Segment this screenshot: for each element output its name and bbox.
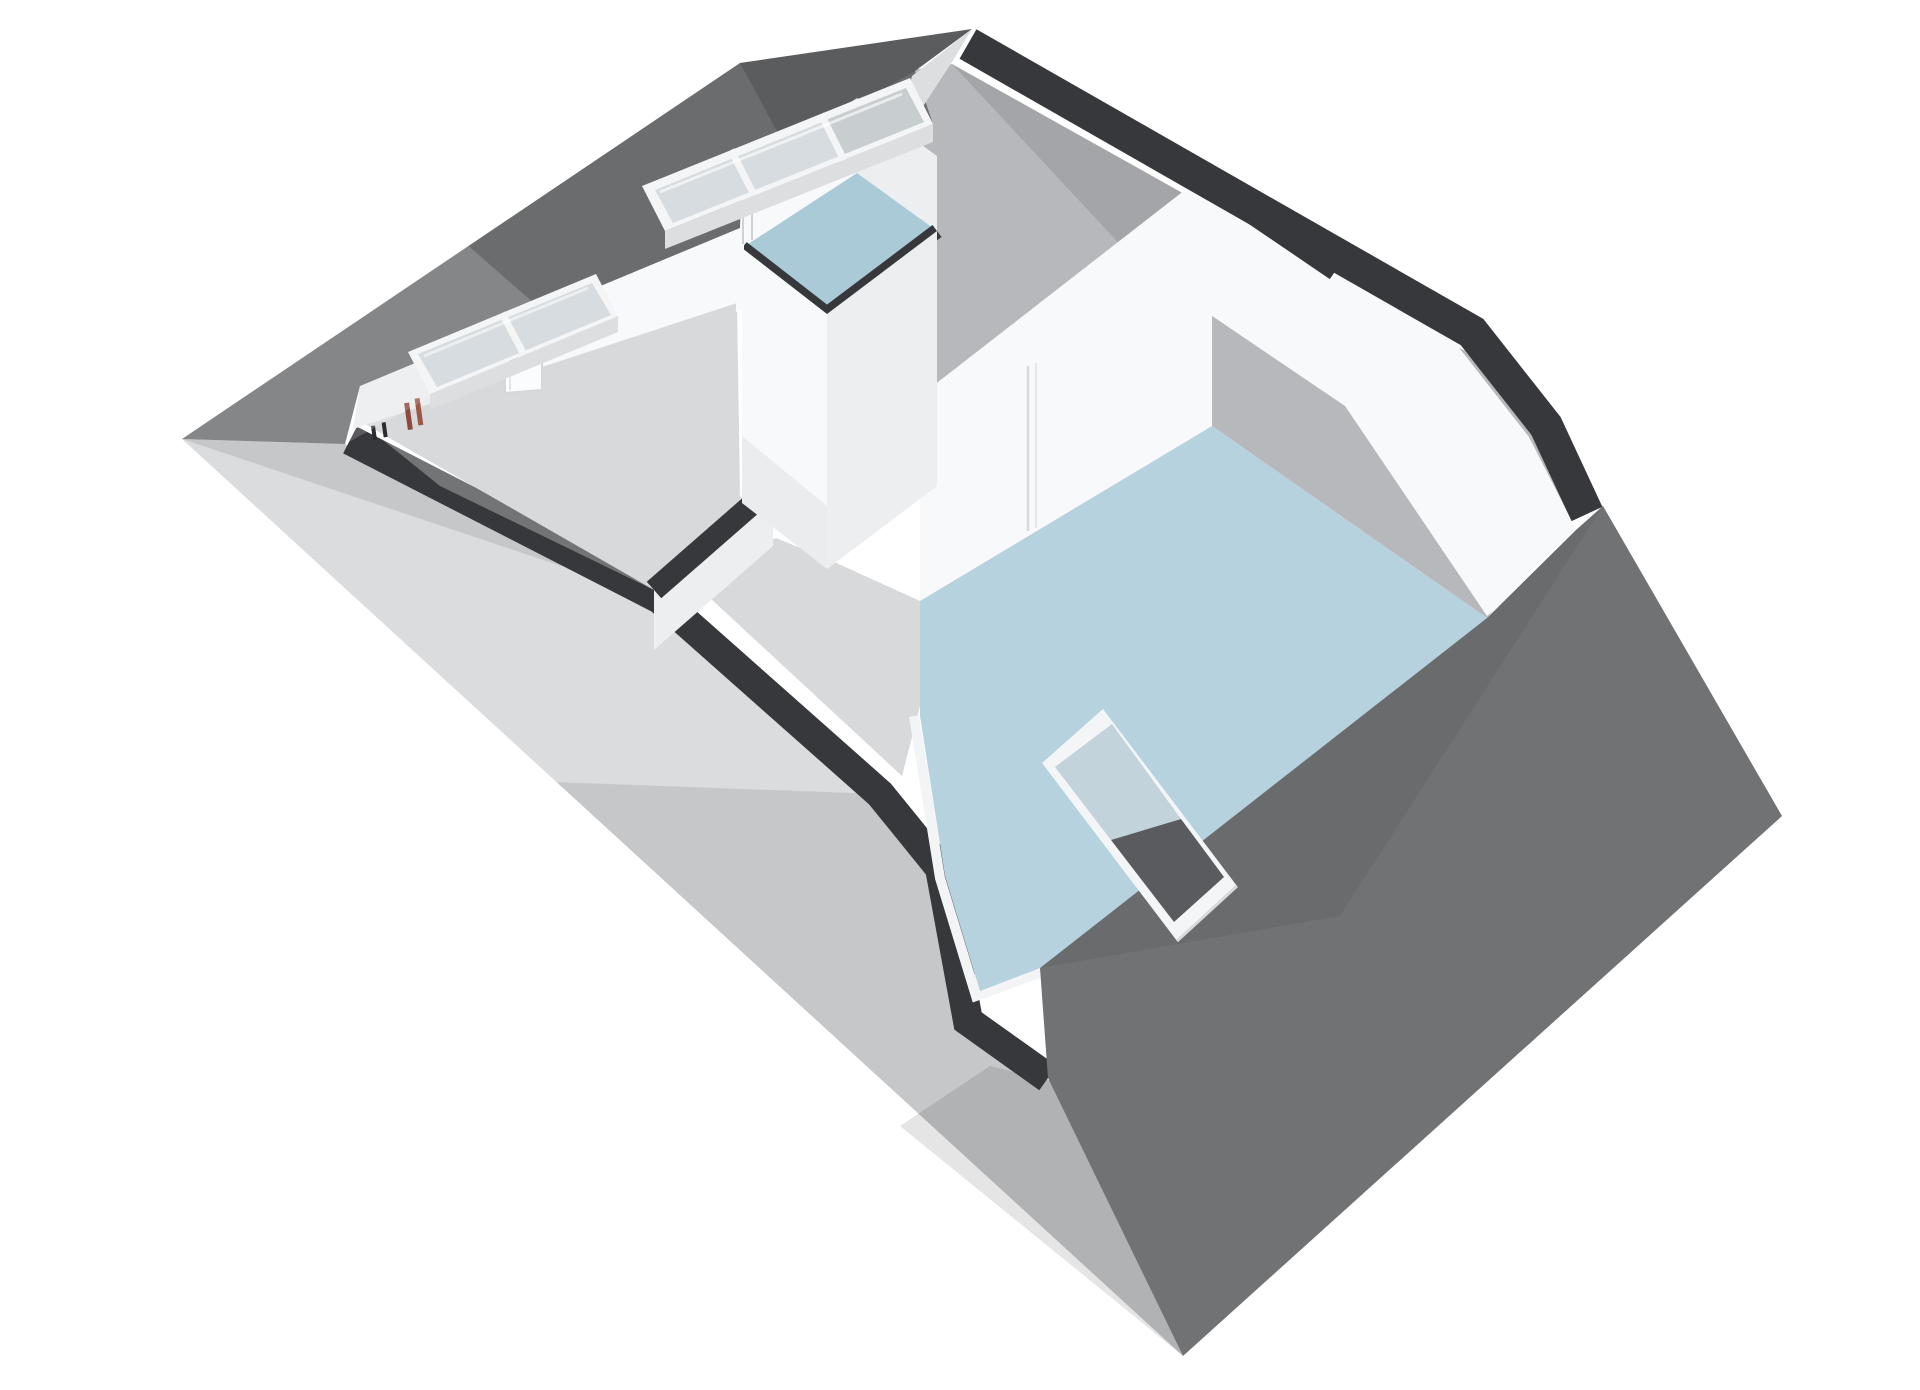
floorplan-3d-view <box>40 16 1920 1374</box>
floorplan-svg <box>40 16 1920 1374</box>
